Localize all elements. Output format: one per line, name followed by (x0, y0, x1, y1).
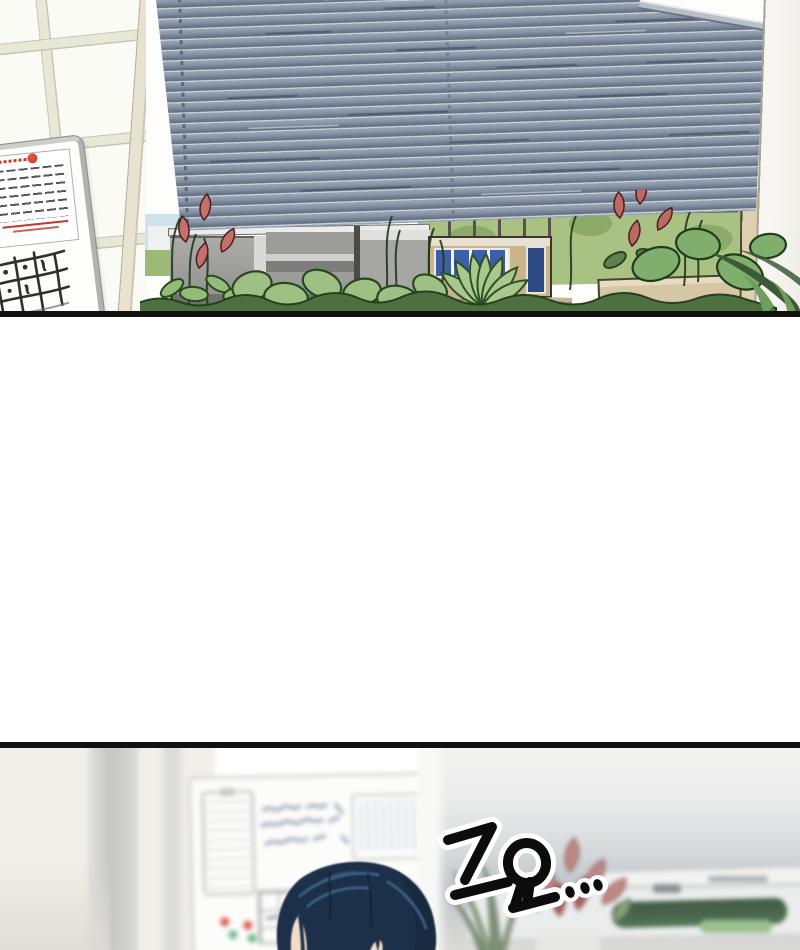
panel-office-window (0, 0, 800, 311)
sheet-number-table (0, 164, 72, 223)
clipboard (201, 790, 255, 895)
red-magnet-icon (243, 921, 252, 930)
foreground-plants (140, 190, 800, 311)
wall-light-stripe (165, 748, 179, 950)
red-magnet-icon (27, 153, 38, 164)
panel-blurred-office: 고요... (0, 748, 800, 950)
sheet-red-header (0, 158, 28, 165)
light-green-shelf (700, 920, 772, 933)
webtoon-page: 고요... (0, 0, 800, 950)
clipboard-clip-icon (220, 788, 234, 796)
window-scene (140, 0, 800, 311)
red-magnet-icon (220, 917, 229, 926)
panel-border (0, 311, 800, 317)
desk-object (708, 876, 768, 882)
wall-shadow (0, 858, 110, 950)
pinned-sheet (0, 148, 79, 248)
green-magnet-icon (228, 930, 237, 939)
right-flower-cluster (612, 190, 675, 247)
left-flower-cluster (175, 194, 237, 269)
green-magnet-icon (247, 933, 256, 942)
sfx-goyo: 고요... (414, 806, 634, 932)
hand-drawn-grid (0, 245, 79, 311)
white-gutter (0, 317, 800, 742)
panel-border (0, 742, 800, 748)
sfx-goyo-text: 고요... (414, 806, 634, 932)
scribble-notes (258, 798, 351, 862)
monstera-right (628, 226, 787, 296)
